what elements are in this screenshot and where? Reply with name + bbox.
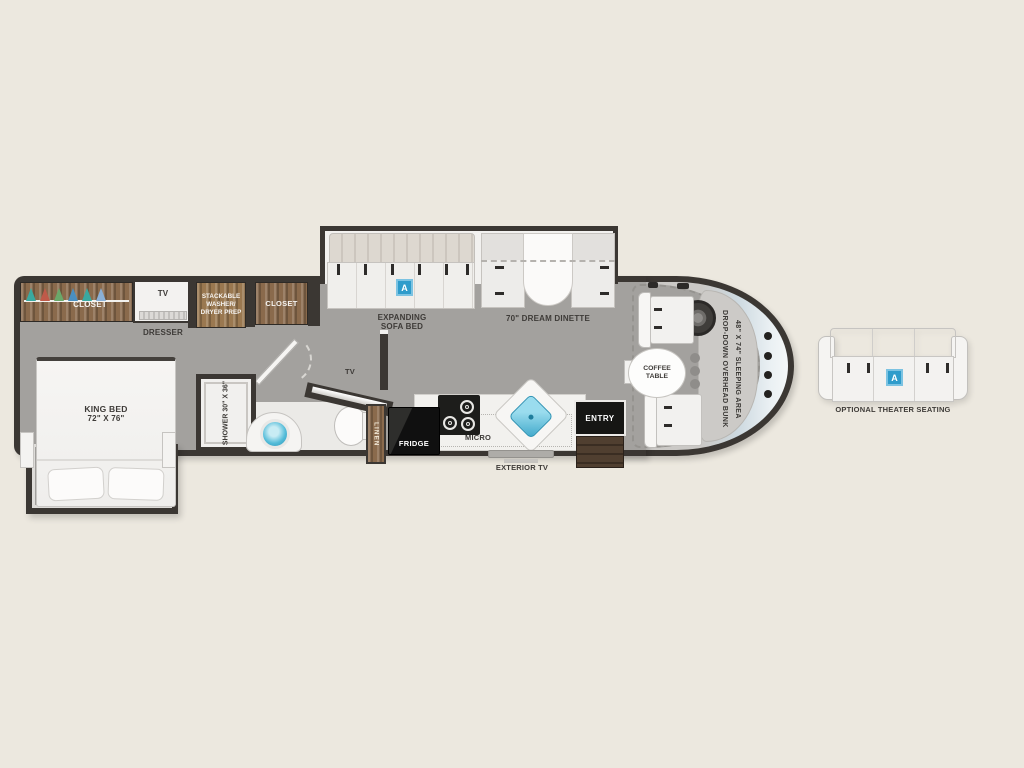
pillow	[47, 467, 105, 502]
nightstand	[162, 432, 176, 468]
theater-label: OPTIONAL THEATER SEATING	[818, 406, 968, 415]
fridge-label: FRIDGE	[389, 439, 439, 448]
shower-name: SHOWER	[223, 414, 230, 446]
theater-backrest	[830, 328, 956, 358]
wall-post	[380, 334, 388, 390]
hall-closet: CLOSET	[255, 282, 308, 325]
entry-door: ENTRY	[574, 400, 626, 436]
sink-drain	[527, 413, 534, 420]
coffee-table-label-line: TABLE	[646, 373, 668, 382]
optional-theater-seating: A	[818, 328, 968, 404]
windshield-dot	[764, 371, 772, 379]
bath-sink	[260, 419, 290, 449]
micro-label: MICRO	[446, 434, 510, 443]
seat-seam	[664, 424, 672, 427]
cooktop	[438, 395, 480, 435]
tv-dresser-cabinet: TV	[133, 280, 193, 323]
passenger-seat	[644, 390, 704, 450]
sofa-hinge-mark	[418, 264, 421, 275]
washer-label-line: STACKABLE	[202, 293, 240, 301]
coffee-table-label-line: COFFEE	[643, 365, 671, 374]
seat-seam	[847, 363, 850, 373]
dinette-fold-line	[481, 260, 615, 262]
king-bed-name: KING BED	[46, 404, 166, 414]
rv-floorplan: A CLOSET TV DRESSER STACKABLE WASHER/ DR…	[0, 0, 1024, 768]
seat-seam	[946, 363, 949, 373]
exterior-tv-bracket	[488, 450, 554, 458]
dinette-label: 70" DREAM DINETTE	[492, 314, 604, 323]
bunk-label-line: 48" X 74" SLEEPING AREA	[731, 286, 744, 452]
driver-seat	[638, 288, 696, 352]
hanger-icon	[26, 288, 36, 301]
seat-seam	[926, 363, 929, 373]
pillow	[107, 467, 164, 501]
sofa-label-line: SOFA BED	[350, 322, 454, 331]
bunk-label-line: DROP-DOWN OVERHEAD BUNK	[718, 286, 731, 452]
windshield-dot	[764, 332, 772, 340]
king-bed-label: KING BED 72" X 76"	[46, 404, 166, 423]
console-dot	[690, 353, 700, 363]
burner-icon	[460, 400, 474, 414]
burner-icon	[461, 417, 475, 431]
console-dot	[690, 379, 700, 389]
bed-fold-line	[37, 459, 175, 461]
sofa-label: EXPANDING SOFA BED	[350, 313, 454, 332]
seat-seam	[654, 326, 662, 329]
shower-size: 30" X 36"	[223, 381, 230, 412]
wall-post	[246, 282, 255, 327]
entry-label: ENTRY	[585, 414, 614, 423]
seat-cushion	[656, 394, 702, 446]
dresser-label: DRESSER	[126, 328, 200, 337]
shower-label: SHOWER 30" X 36"	[222, 381, 231, 445]
seat-seam	[664, 406, 672, 409]
linen-label: LINEN	[373, 422, 380, 447]
bath-tv-label: TV	[330, 368, 370, 377]
exterior-tv-label: EXTERIOR TV	[474, 464, 570, 473]
seat-cushion	[650, 296, 694, 344]
sofa-hinge-mark	[337, 264, 340, 275]
option-a-marker-theater: A	[886, 369, 903, 386]
sofa-hinge-mark	[364, 264, 367, 275]
dinette-booth-left	[481, 233, 525, 308]
hall-closet-label: CLOSET	[265, 299, 297, 308]
sofa-hinge-mark	[391, 264, 394, 275]
drop-down-bunk-label: DROP-DOWN OVERHEAD BUNK 48" X 74" SLEEPI…	[718, 286, 744, 452]
washer-label-line: WASHER/	[206, 301, 235, 309]
windshield-dot	[764, 352, 772, 360]
dinette-clip	[495, 266, 504, 269]
linen-cabinet: LINEN	[366, 404, 386, 464]
closet-label: CLOSET	[50, 300, 130, 309]
option-a-marker-sofa: A	[396, 279, 413, 296]
sofa-backrest	[329, 233, 475, 263]
washer-label-line: DRYER PREP	[201, 309, 242, 317]
seat-seam	[654, 308, 662, 311]
tv-label: TV	[135, 289, 191, 298]
washer-dryer-prep: STACKABLE WASHER/ DRYER PREP	[196, 282, 246, 328]
dinette-clip	[600, 266, 609, 269]
dresser-front	[139, 311, 187, 320]
coffee-table: COFFEE TABLE	[628, 348, 686, 398]
burner-icon	[443, 416, 457, 430]
dinette-booth-right	[571, 233, 615, 308]
king-bed-size: 72" X 76"	[46, 414, 166, 423]
nightstand	[20, 432, 34, 468]
dinette-table	[523, 233, 573, 306]
sofa-label-line: EXPANDING	[350, 313, 454, 322]
sofa-hinge-mark	[466, 264, 469, 275]
sofa-hinge-mark	[445, 264, 448, 275]
hanger-icon	[40, 288, 50, 301]
kitchen-sink-basin	[508, 394, 553, 439]
windshield-dot	[764, 390, 772, 398]
fridge: FRIDGE	[388, 407, 440, 455]
entry-steps	[576, 436, 624, 468]
wall-post	[188, 282, 196, 328]
wall-post	[308, 282, 320, 326]
shower-pan: SHOWER 30" X 36"	[204, 382, 248, 444]
seat-seam	[867, 363, 870, 373]
dinette-clip	[495, 292, 504, 295]
dinette-clip	[600, 292, 609, 295]
theater-seats: A	[832, 356, 954, 402]
console-dot	[690, 366, 700, 376]
